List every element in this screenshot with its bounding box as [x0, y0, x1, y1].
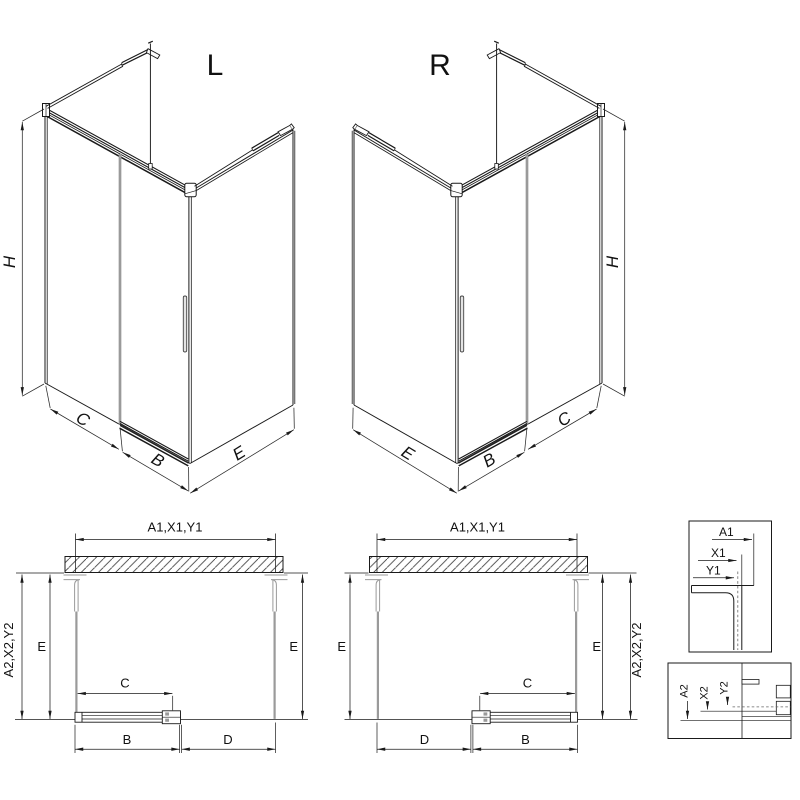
plan-right-dim-e-right: E [592, 639, 601, 654]
dim-label-c-right: C [554, 408, 575, 431]
plan-left-dim-a2x2y2: A2,X2,Y2 [1, 623, 16, 678]
detail-floor-label-x2: X2 [699, 686, 711, 699]
dim-label-e-right: E [398, 442, 418, 464]
wall-profile-right [265, 575, 288, 719]
dim-label-height-right: H [603, 255, 622, 268]
building-wall-hatch-right [370, 557, 588, 573]
technical-drawing-canvas: L H C B E R H E B C [0, 0, 800, 800]
door-handle [183, 296, 186, 352]
drawing-sheet: L H C B E R H E B C [0, 0, 800, 800]
plan-right-dim-a2x2y2: A2,X2,Y2 [629, 623, 644, 678]
plan-left-dim-a1x1y1: A1,X1,Y1 [148, 520, 203, 535]
wall-bracket [146, 49, 159, 59]
iso-view-left-art [22, 41, 295, 493]
iso-dimension-lines [22, 109, 294, 493]
dim-label-c-left: C [73, 408, 94, 431]
detail-wall-label-y1: Y1 [706, 564, 721, 578]
plan-left-dim-e-left: E [37, 639, 46, 654]
plan-right-dim-d: D [420, 732, 429, 747]
door-rail-assembly [75, 711, 181, 724]
plan-right-dim-b: B [521, 732, 530, 747]
plan-left-dim-e-right: E [289, 639, 298, 654]
detail-floor-label-a2: A2 [679, 684, 691, 697]
plan-right-dim-c: C [523, 676, 532, 691]
detail-box-wall-profile [689, 521, 772, 652]
detail-wall-label-x1: X1 [711, 546, 726, 560]
detail-box-floor-profile [668, 663, 791, 739]
dim-label-b-right: B [479, 449, 498, 471]
detail-wall-label-a1: A1 [719, 525, 734, 539]
variant-label-right: R [429, 49, 451, 82]
plan-left-dim-c: C [120, 676, 129, 691]
plan-right-dim-a1x1y1: A1,X1,Y1 [450, 520, 505, 535]
wall-profile-left [64, 575, 87, 719]
iso-view-right-art [352, 41, 625, 493]
dim-label-e-left: E [229, 442, 249, 464]
plan-left-dim-b: B [123, 732, 132, 747]
plan-right-dim-e-left: E [337, 639, 346, 654]
plan-left-dim-d: D [223, 732, 232, 747]
building-wall-hatch-left [65, 557, 283, 573]
variant-label-left: L [207, 49, 224, 82]
detail-floor-label-y2: Y2 [719, 681, 731, 694]
dim-label-height-left: H [0, 255, 19, 268]
dim-label-b-left: B [148, 449, 167, 471]
